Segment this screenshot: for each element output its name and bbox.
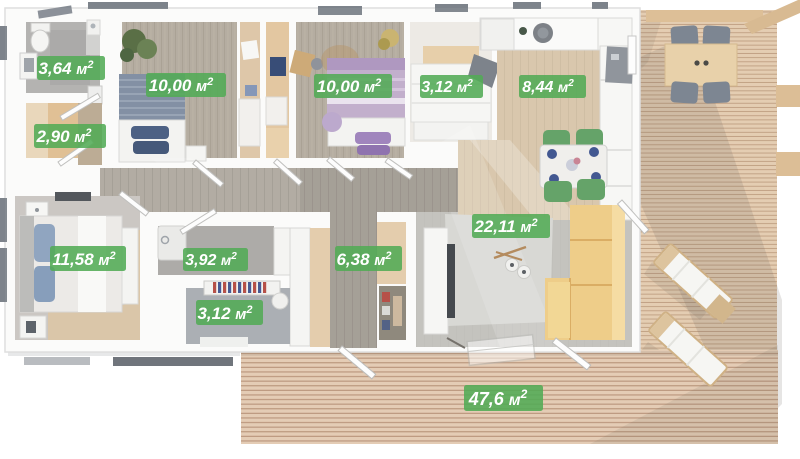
- svg-text:8,44 м2: 8,44 м2: [522, 78, 574, 96]
- svg-text:22,11 м2: 22,11 м2: [473, 217, 537, 236]
- svg-text:10,00 м2: 10,00 м2: [317, 77, 382, 96]
- svg-text:6,38 м2: 6,38 м2: [336, 250, 391, 269]
- svg-text:10,00 м2: 10,00 м2: [149, 76, 214, 95]
- svg-text:3,64 м2: 3,64 м2: [38, 59, 93, 78]
- svg-text:3,12 м2: 3,12 м2: [421, 78, 473, 96]
- svg-text:11,58 м2: 11,58 м2: [52, 250, 115, 269]
- svg-text:3,92 м2: 3,92 м2: [185, 251, 237, 269]
- svg-text:3,12 м2: 3,12 м2: [197, 304, 252, 323]
- svg-text:2,90 м2: 2,90 м2: [35, 127, 91, 146]
